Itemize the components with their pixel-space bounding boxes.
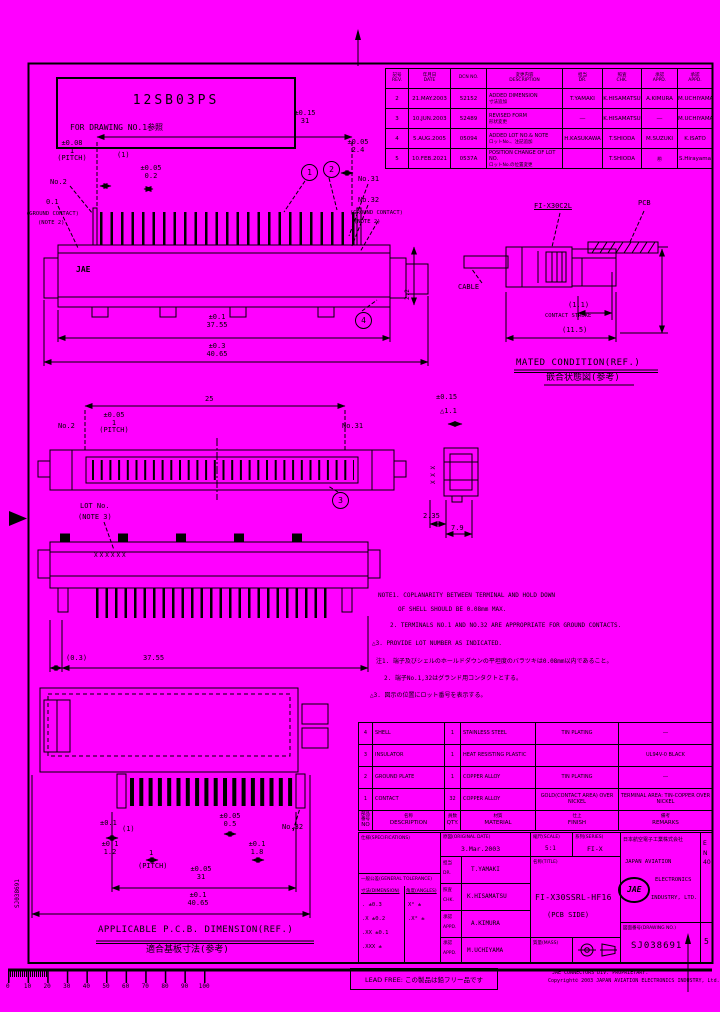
appd-col-header: 承認APPD.: [642, 69, 678, 89]
ruler-label: 70: [135, 983, 155, 990]
tol-row-2: .X ±0.2: [362, 916, 385, 922]
dim-0-3: (0.3): [66, 655, 87, 662]
pcb-dim-0-5: ±0.050.5: [216, 813, 244, 828]
rev-cell: 5: [701, 923, 713, 964]
ruler-label: 50: [96, 983, 116, 990]
balloon-2: 2: [323, 161, 340, 178]
appd1-label-jp: 承認: [443, 914, 452, 920]
dim-2-2-vertical: 2.2: [404, 289, 411, 300]
spec-cell: 仕様(SPECIFICATIONS): [359, 833, 441, 874]
ruler-label: 90: [175, 983, 195, 990]
projection-cell: [573, 938, 621, 964]
title-label: 名称(TITLE): [533, 859, 558, 865]
chk-label-jp: 照査: [443, 887, 452, 893]
parts-table: 4 SHELL 1 STAINLESS STEEL TIN PLATING ― …: [358, 722, 713, 831]
tol-ang-1: X° ±: [408, 902, 421, 908]
pcb-view-title: APPLICABLE P.C.B. DIMENSION(REF.): [98, 926, 293, 935]
pcb-dim-1-2: ±0.11.2: [97, 841, 123, 856]
pcb-dim-ref-1: (1): [122, 826, 135, 833]
x-marks-side: X X X: [430, 466, 437, 484]
dim-2-4: ±0.052.4: [344, 139, 372, 154]
series-cell: 系列(SERIES) FI-X: [573, 833, 621, 857]
ruler-label: 100: [194, 983, 214, 990]
lead-free-box: LEAD FREE: この製品は鉛フリー品です: [350, 968, 498, 990]
scale-value: 5:1: [545, 845, 556, 852]
jae-shell-marking: JAE: [76, 266, 90, 274]
appd2-cell: 承認 APPD. M.UCHIYAMA: [441, 938, 531, 964]
spec-label: 仕様(SPECIFICATIONS): [361, 835, 410, 841]
balloon-4: 4: [355, 312, 372, 329]
dim-side-tol: ±0.15: [436, 394, 457, 401]
chk-name: K.HISAMATSU: [467, 893, 507, 900]
rev-col-header: 記号REV.: [386, 69, 409, 89]
label-pcb: PCB: [638, 200, 651, 207]
company-name-jp: 日本航空電子工業株式会社: [623, 836, 683, 843]
tolerance-cell: 一般公差(GENERAL TOLERANCE) 寸法(DIMENSION) 角度…: [359, 874, 441, 964]
title-block: 仕様(SPECIFICATIONS) 一般公差(GENERAL TOLERANC…: [358, 832, 712, 963]
drawing-number-label: 図面番号(DRAWING NO.): [623, 925, 676, 931]
label-contact-stroke: CONTACT STROKE: [545, 314, 591, 320]
dim-37-55: ±0.137.55: [195, 314, 239, 329]
date-col-header: 年月日DATE: [409, 69, 451, 89]
tol-row-3: .XX ±0.1: [362, 930, 389, 936]
ruler-label: 10: [18, 983, 38, 990]
ruler-label: 20: [37, 983, 57, 990]
scale-cell: 縮尺(SCALE) 5:1: [531, 833, 573, 857]
company-name-en3: INDUSTRY, LTD.: [651, 895, 697, 901]
tolerance-label: 一般公差(GENERAL TOLERANCE): [361, 876, 432, 882]
balloon-1: 1: [301, 164, 318, 181]
drawing-number-value: SJ038691: [631, 941, 682, 951]
label-no32-pcb: No.32: [282, 824, 303, 831]
dim-0-2: ±0.050.2: [136, 165, 166, 180]
origdate-value: 3.Mar.2003: [461, 845, 500, 853]
lead-free-note: LEAD FREE: この製品は鉛フリー品です: [365, 974, 483, 984]
label-cable: CABLE: [458, 284, 479, 291]
jae-logo: JAE: [627, 885, 641, 894]
tolerance-ang-col: 角度(ANGLES): [406, 888, 437, 894]
scale-ruler: 0102030405060708090100: [0, 983, 214, 990]
dim-pitch-top: ±0.081(PITCH): [50, 140, 94, 163]
pcb-dim-tol-1: ±0.1: [100, 820, 117, 827]
form-code: EN40: [703, 839, 711, 868]
rev-value: 5: [704, 937, 709, 946]
parts-row: 4 SHELL 1 STAINLESS STEEL TIN PLATING ―: [359, 723, 713, 745]
parts-row: 3 INSULATOR 1 HEAT RESISTING PLASTIC UL9…: [359, 745, 713, 767]
pcb-dim-pitch-val: 1: [149, 850, 153, 857]
parts-header-row: 部品番号NO 名称DESCRIPTION 員数QTY. 材質MATERIAL 仕…: [359, 811, 713, 831]
appd2-name: M.UCHIYAMA: [467, 947, 503, 954]
revision-row: 4 5.AUG.2005 05094 ADDED LOT NO.& NOTEロッ…: [386, 129, 713, 149]
label-lot-note3: (NOTE 3): [78, 514, 112, 521]
label-ground-left: (GROUND CONTACT): [26, 212, 79, 218]
label-lot-no: LOT No.: [80, 503, 110, 510]
dim-40-65: ±0.340.65: [195, 343, 239, 358]
dr-col-header: 担当DR.: [563, 69, 603, 89]
pcb-view-title-jp: 適合基板寸法(参考): [146, 946, 229, 955]
stamp-code: 12SB03PS: [57, 94, 295, 108]
label-no31-front: No.31: [342, 423, 363, 430]
appd2-label-en: APPD.: [443, 951, 456, 956]
dim-37-55-lower: 37.55: [143, 655, 164, 662]
appd1-name: A.KIMURA: [471, 920, 500, 927]
appd2-col-header: 承認APPD.: [678, 69, 713, 89]
stamp-note: FOR DRAWING NO.1参照: [70, 124, 163, 132]
note-jp-2: 2. 端子No.1,32はグランド用コンタクトとする。: [384, 673, 522, 682]
series-label: 系列(SERIES): [575, 834, 603, 840]
label-mating-plug: FI-X30C2L: [534, 203, 572, 210]
tol-row-1: . ±0.3: [362, 902, 382, 908]
side-drawing-number: SJ038691: [14, 879, 21, 908]
label-no32-top: No.32: [358, 197, 379, 204]
label-note2-left: (NOTE 2): [38, 221, 65, 227]
dr-label-en: DR.: [443, 871, 451, 876]
dim-pitch-front: ±0.051(PITCH): [94, 412, 134, 435]
dim-31: ±0.1531: [285, 110, 325, 125]
copyright-note: Copyright© 2003 JAPAN AVIATION ELECTRONI…: [548, 979, 720, 984]
tolerance-dim-col: 寸法(DIMENSION): [361, 888, 400, 894]
mated-view-title: MATED CONDITION(REF.): [516, 359, 640, 368]
tol-row-4: .XXX ±: [362, 944, 382, 950]
note-jp-1: 注1. 端子及びシェルのホールドダウンの平坦度のバラツキは0.08mm以内である…: [376, 656, 612, 665]
revision-row: 3 10.JUN.2003 52489 REVISED FORM形状変更 ― K…: [386, 109, 713, 129]
note-jp-3: △3. 図示の位置にロット番号を表示する。: [370, 690, 486, 699]
ruler-label: 40: [77, 983, 97, 990]
appd1-cell: 承認 APPD. A.KIMURA: [441, 911, 531, 938]
mass-label: 質量(MASS): [533, 940, 558, 946]
scale-label: 縮尺(SCALE): [533, 834, 560, 840]
dcn-col-header: DCN NO.: [451, 69, 487, 89]
pcb-dim-31: ±0.0531: [186, 866, 216, 881]
note-2: 2. TERMINALS NO.1 AND NO.32 ARE APPROPRI…: [390, 622, 621, 629]
part-number: FI-X30SSRL-HF16: [535, 893, 612, 902]
desc-col-header: 変更内容DESCRIPTION: [487, 69, 563, 89]
series-value: FI-X: [587, 845, 603, 853]
dim-2-35: 2.35: [423, 513, 440, 520]
drawing-sheet: 12SB03PS FOR DRAWING NO.1参照 記号REV. 年月日DA…: [0, 0, 720, 1012]
origdate-cell: 原図(ORIGINAL DATE) 3.Mar.2003: [441, 833, 531, 857]
revision-header-row: 記号REV. 年月日DATE DCN NO. 変更内容DESCRIPTION 担…: [386, 69, 713, 89]
company-name-en2: ELECTRONICS: [655, 877, 691, 883]
chk-cell: 照査 CHK. K.HISAMATSU: [441, 884, 531, 911]
appd1-label-en: APPD.: [443, 925, 456, 930]
label-ground-right: (GROUND CONTACT): [350, 211, 403, 217]
ruler-label: 60: [116, 983, 136, 990]
dr-cell: 担当 DR. T.YAMAKI: [441, 857, 531, 884]
balloon-3: 3: [332, 492, 349, 509]
note-3: △3. PROVIDE LOT NUMBER AS INDICATED.: [372, 640, 502, 647]
tol-ang-2: .X° ±: [408, 916, 425, 922]
origdate-label: 原図(ORIGINAL DATE): [443, 834, 490, 840]
label-no31-top: No.31: [358, 176, 379, 183]
dim-flag-1-1: △1.1: [440, 408, 457, 415]
parts-row: 2 GROUND PLATE 1 COPPER ALLOY TIN PLATIN…: [359, 767, 713, 789]
dim-contact-stroke-value: (1.1): [568, 302, 589, 309]
mated-view-title-jp: 嵌合状態図(参考): [546, 374, 620, 383]
revision-table: 記号REV. 年月日DATE DCN NO. 変更内容DESCRIPTION 担…: [385, 68, 713, 169]
chk-col-header: 照査CHK.: [603, 69, 642, 89]
label-no2-top: No.2: [50, 179, 67, 186]
dim-25: 25: [205, 396, 213, 403]
pcb-dim-pitch-label: (PITCH): [138, 863, 168, 870]
dr-label-jp: 担当: [443, 860, 452, 866]
title-cell: 名称(TITLE) FI-X30SSRL-HF16 (PCB SIDE): [531, 857, 621, 938]
dr-name: T.YAMAKI: [471, 866, 500, 873]
chk-label-en: CHK.: [443, 898, 454, 903]
parts-row: 1 CONTACT 32 COPPER ALLOY GOLD(CONTACT A…: [359, 789, 713, 811]
note-1a: NOTE1. COPLANARITY BETWEEN TERMINAL AND …: [378, 592, 555, 599]
form-strip-cell: EN40: [701, 833, 713, 923]
lot-marking-area: XXXXXX: [94, 553, 128, 559]
pcb-dim-1-8: ±0.11.8: [244, 841, 270, 856]
company-cell: 日本航空電子工業株式会社 JAPAN AVIATION ELECTRONICS …: [621, 833, 701, 923]
appd2-label-jp: 承認: [443, 940, 452, 946]
dim-7-9: 7.9: [451, 525, 464, 532]
dim-0-1-ground: 0.1: [46, 199, 59, 206]
dim-11-5: (11.5): [562, 327, 587, 334]
dim-ref-1: (1): [117, 152, 130, 159]
label-note2-right: (NOTE 2): [354, 220, 381, 226]
proprietary-note: JAE CONNECTORS DIV. PROPRIETARY.: [552, 971, 648, 976]
note-1b: OF SHELL SHOULD BE 0.08mm MAX.: [398, 606, 506, 613]
revision-row: 5 10.FEB.2021 0537A POSITION CHANGE OF L…: [386, 149, 713, 169]
ruler-label: 30: [57, 983, 77, 990]
drawing-number-cell: 図面番号(DRAWING NO.) SJ038691: [621, 923, 701, 964]
label-no2-front: No.2: [58, 423, 75, 430]
pcb-dim-40-65: ±0.140.65: [178, 892, 218, 907]
part-suffix: (PCB SIDE): [547, 911, 589, 919]
company-name-en1: JAPAN AVIATION: [625, 859, 671, 865]
mass-cell: 質量(MASS): [531, 938, 573, 964]
ruler-label: 80: [155, 983, 175, 990]
ruler-label: 0: [0, 983, 18, 990]
revision-row: 2 21.MAY.2003 52152 ADDED DIMENSION寸法追加 …: [386, 89, 713, 109]
